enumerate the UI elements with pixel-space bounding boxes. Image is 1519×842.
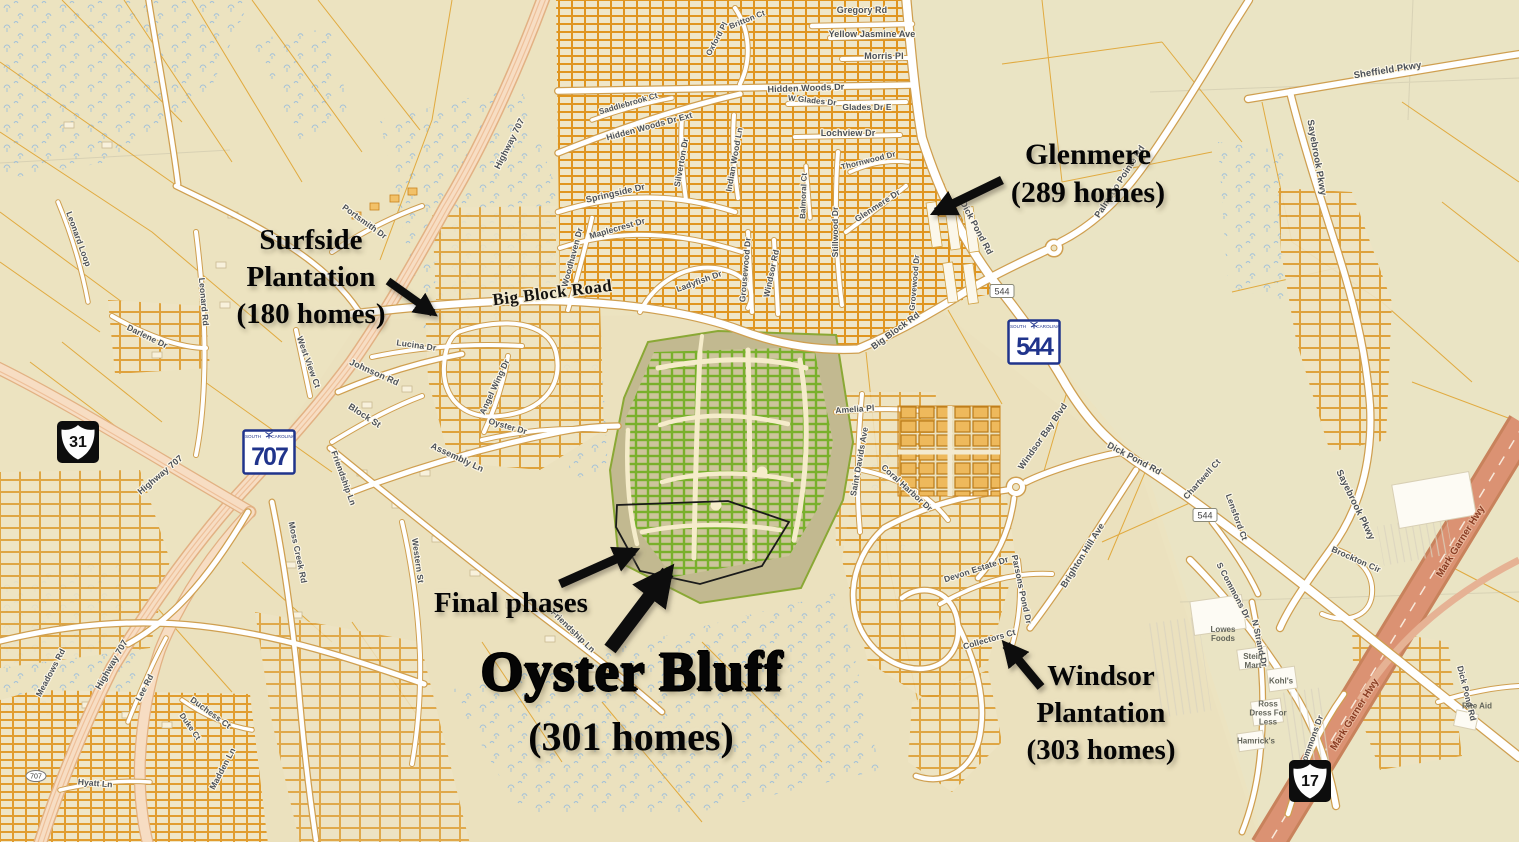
road-label: Glades Dr E <box>842 102 892 112</box>
road-label: Balmoral Ct <box>798 173 809 220</box>
road-label: Yellow Jasmine Ave <box>829 29 916 39</box>
roundabout <box>1013 484 1020 491</box>
road-label: Morris Pl <box>864 51 903 61</box>
map-canvas: Gregory RdYellow Jasmine AveMorris PlHid… <box>0 0 1519 842</box>
road-label: Stillwood Dr <box>830 206 840 257</box>
road-label: Gregory Rd <box>837 5 888 15</box>
apartment-complex <box>898 406 1000 496</box>
roundabout <box>1051 245 1057 251</box>
road-label: Lochview Dr <box>821 128 876 138</box>
annotated-map: Gregory RdYellow Jasmine AveMorris PlHid… <box>0 0 1519 842</box>
